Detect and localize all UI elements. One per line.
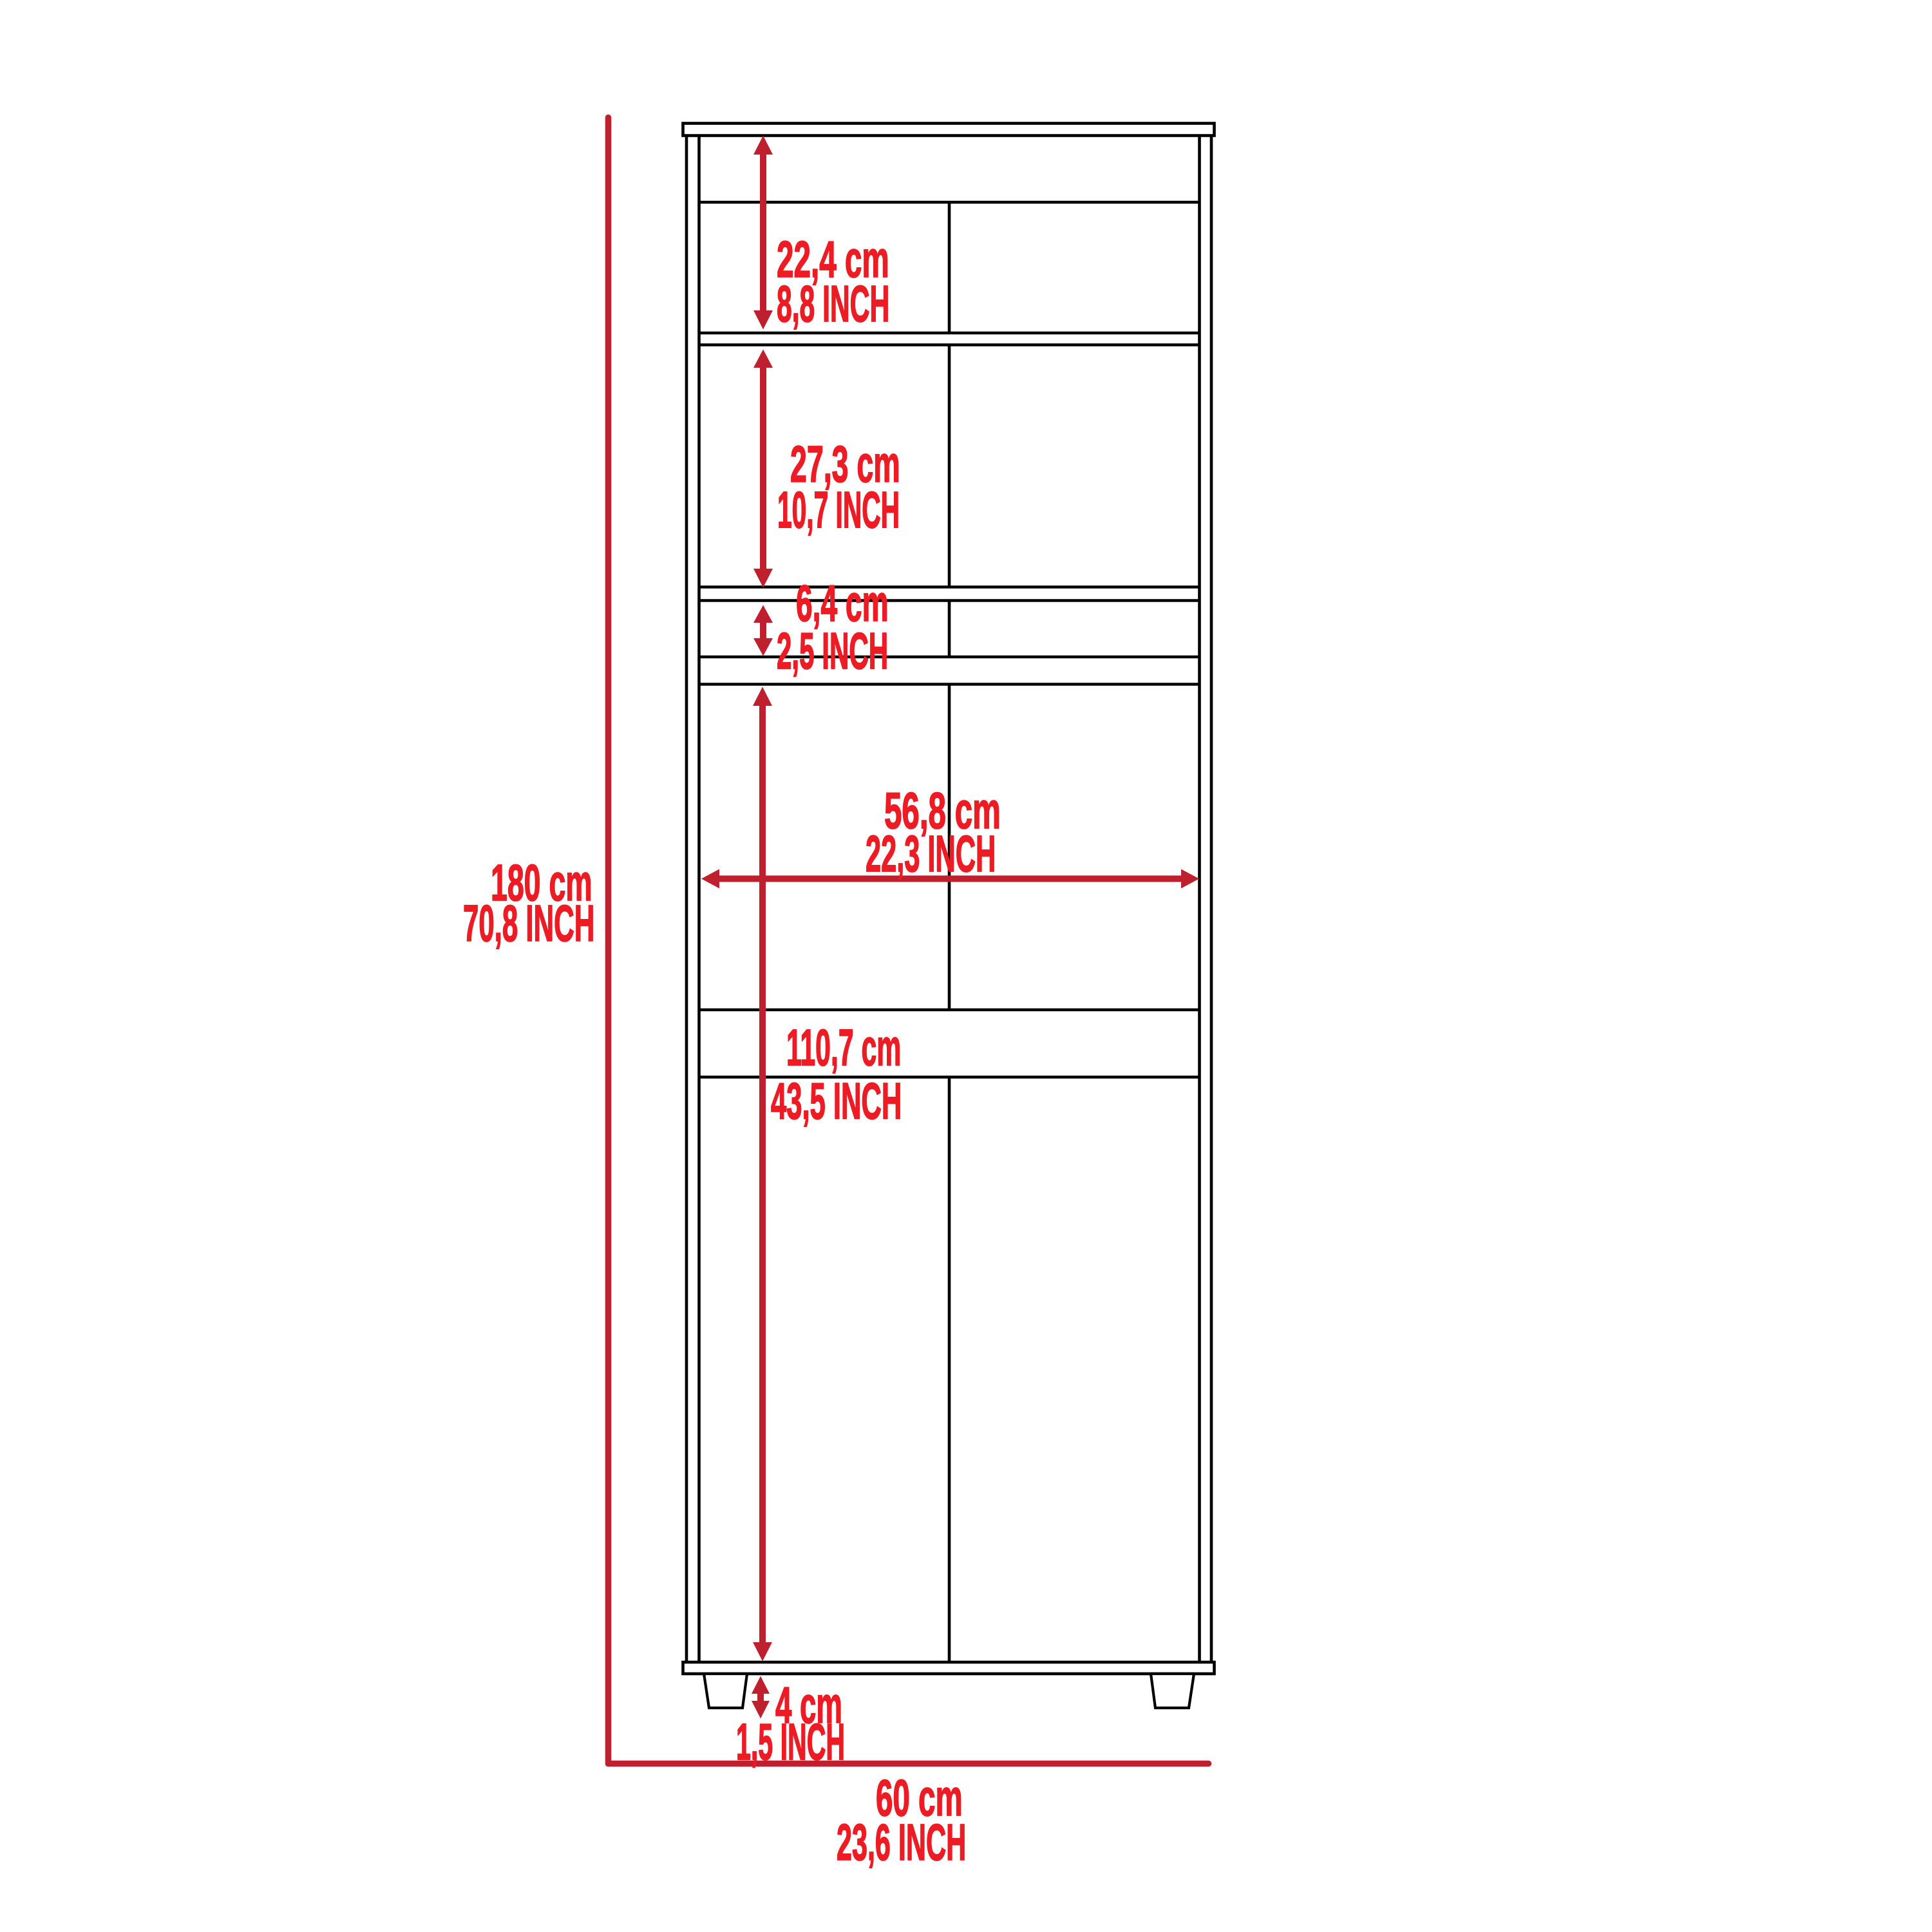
svg-text:8,8 INCH: 8,8 INCH [777,275,889,333]
svg-text:23,6 INCH: 23,6 INCH [837,1814,966,1871]
svg-text:1,5 INCH: 1,5 INCH [736,1713,845,1770]
svg-text:110,7 cm: 110,7 cm [786,1019,901,1077]
svg-text:43,5 INCH: 43,5 INCH [771,1072,902,1130]
svg-text:22,3 INCH: 22,3 INCH [866,825,996,883]
svg-text:10,7 INCH: 10,7 INCH [777,482,900,538]
svg-text:2,5 INCH: 2,5 INCH [777,621,888,679]
svg-text:70,8 INCH: 70,8 INCH [463,895,594,952]
